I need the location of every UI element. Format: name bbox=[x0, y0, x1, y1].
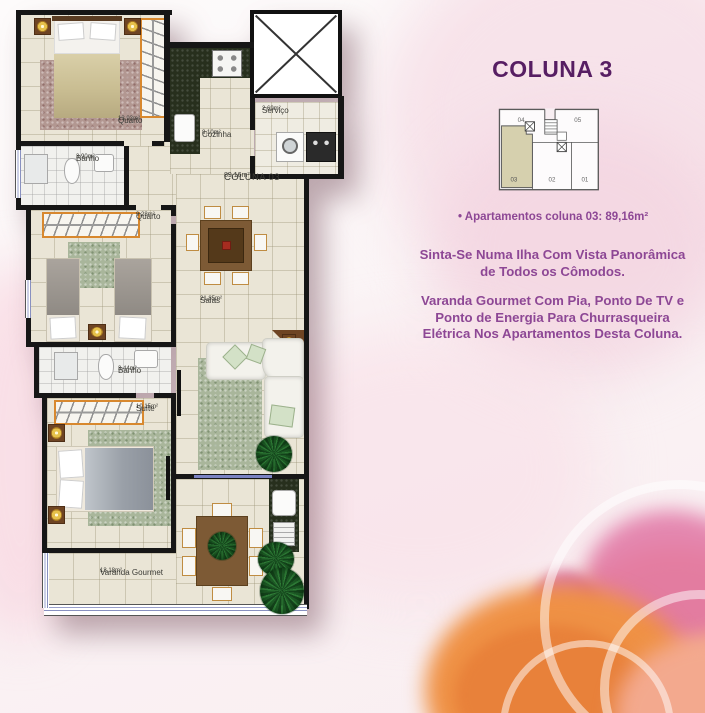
nightstand-lamp bbox=[124, 18, 141, 35]
elevator-icon bbox=[525, 122, 534, 131]
dining-chair bbox=[254, 234, 267, 251]
bed-blanket-quarto-1 bbox=[54, 54, 120, 118]
bed-blanket bbox=[115, 259, 151, 315]
floor-plan: Quarto13,93m² Banho3,90m² Cozinha8,10m² … bbox=[14, 8, 348, 622]
dining-table-centerpiece bbox=[222, 241, 231, 250]
bed-blanket bbox=[47, 259, 79, 315]
tv-panel-suite bbox=[166, 456, 170, 500]
window bbox=[25, 280, 31, 318]
washing-machine bbox=[276, 132, 304, 162]
wall-segment bbox=[16, 205, 136, 210]
page-title: COLUNA 3 bbox=[400, 56, 705, 83]
nightstand-lamp bbox=[48, 424, 65, 442]
shower-banho-2 bbox=[54, 352, 78, 380]
varanda-chair bbox=[249, 528, 263, 548]
key-plan-unit-03: 03 bbox=[510, 176, 517, 183]
elevator-shaft bbox=[250, 10, 342, 98]
elevator-icon bbox=[557, 142, 566, 151]
sofa-cushion bbox=[269, 404, 296, 427]
bed-headboard-quarto-1 bbox=[52, 16, 122, 21]
area-bullet-text: • Apartamentos coluna 03: 89,16m² bbox=[458, 211, 705, 223]
pillow bbox=[58, 449, 84, 479]
wall-segment bbox=[34, 393, 136, 398]
wall-segment bbox=[26, 205, 31, 347]
wall-segment bbox=[42, 393, 47, 553]
key-plan-diagram: 04 05 03 02 01 bbox=[491, 95, 615, 200]
wardrobe-quarto-2 bbox=[42, 212, 140, 238]
marketing-paragraph-2: Varanda Gourmet Com Pia, Ponto De TV e P… bbox=[411, 293, 695, 343]
wall-segment bbox=[26, 342, 176, 347]
bed-blanket bbox=[85, 448, 153, 510]
pillow bbox=[49, 316, 76, 339]
marketing-paragraph-1: Sinta-Se Numa Ilha Com Vista Panorâmica … bbox=[411, 247, 695, 280]
key-plan-unit-05: 05 bbox=[574, 117, 581, 124]
single-bed bbox=[114, 258, 152, 342]
wall-segment bbox=[16, 141, 124, 146]
varanda-chair bbox=[182, 556, 196, 576]
floor-hall bbox=[124, 146, 176, 210]
washer-drum bbox=[282, 138, 298, 154]
double-bed-suite bbox=[56, 446, 154, 512]
page: Quarto13,93m² Banho3,90m² Cozinha8,10m² … bbox=[0, 0, 705, 713]
info-panel: COLUNA 3 04 05 03 02 01 • Apartamentos c bbox=[400, 0, 705, 343]
wall-segment bbox=[164, 14, 170, 142]
wall-segment bbox=[34, 342, 39, 398]
wall-segment bbox=[250, 98, 255, 130]
varanda-chair bbox=[212, 503, 232, 517]
pillow bbox=[118, 316, 146, 339]
plant bbox=[256, 436, 292, 472]
kitchen-sink bbox=[174, 114, 195, 142]
wall-segment bbox=[171, 210, 176, 216]
dining-table bbox=[200, 220, 252, 271]
pillow bbox=[89, 22, 116, 41]
wall-segment bbox=[16, 10, 172, 15]
dining-chair bbox=[204, 272, 221, 285]
varanda-chair bbox=[182, 528, 196, 548]
wall-segment bbox=[171, 224, 176, 342]
nightstand-lamp bbox=[48, 506, 65, 524]
sliding-glass-door bbox=[194, 475, 272, 478]
key-plan: 04 05 03 02 01 bbox=[491, 95, 615, 205]
varanda-chair bbox=[212, 587, 232, 601]
pillow bbox=[58, 479, 84, 509]
window bbox=[15, 150, 21, 198]
floor-varanda-left bbox=[47, 553, 176, 606]
shower-banho-1 bbox=[24, 154, 48, 184]
service-appliance bbox=[306, 132, 336, 162]
wall-segment bbox=[152, 141, 164, 146]
wall-segment bbox=[304, 179, 309, 609]
pillow bbox=[57, 22, 84, 41]
dining-chair bbox=[232, 206, 249, 219]
tv-panel bbox=[177, 370, 181, 416]
plant bbox=[260, 568, 304, 614]
gourmet-sink bbox=[272, 490, 296, 516]
wall-segment bbox=[171, 393, 176, 553]
dining-chair bbox=[204, 206, 221, 219]
wall-segment bbox=[42, 548, 176, 553]
key-plan-unit-01: 01 bbox=[581, 176, 588, 183]
single-bed bbox=[46, 258, 80, 342]
plant-on-table bbox=[208, 532, 236, 560]
wall-segment bbox=[164, 42, 254, 48]
shaft-x-icon bbox=[254, 14, 338, 94]
key-plan-unit-04: 04 bbox=[517, 117, 524, 124]
closet-quarto-1 bbox=[140, 18, 166, 118]
key-plan-unit-02: 02 bbox=[548, 176, 555, 183]
dining-chair bbox=[186, 234, 199, 251]
toilet-banho-2 bbox=[98, 354, 114, 380]
wardrobe-suite bbox=[54, 400, 144, 425]
dining-chair bbox=[232, 272, 249, 285]
wall-segment bbox=[338, 96, 344, 179]
wall-segment bbox=[124, 146, 129, 205]
stove-icon bbox=[212, 50, 242, 77]
nightstand-lamp bbox=[34, 18, 51, 35]
nightstand-lamp bbox=[88, 324, 106, 340]
balcony-glass-railing-side bbox=[42, 553, 49, 608]
